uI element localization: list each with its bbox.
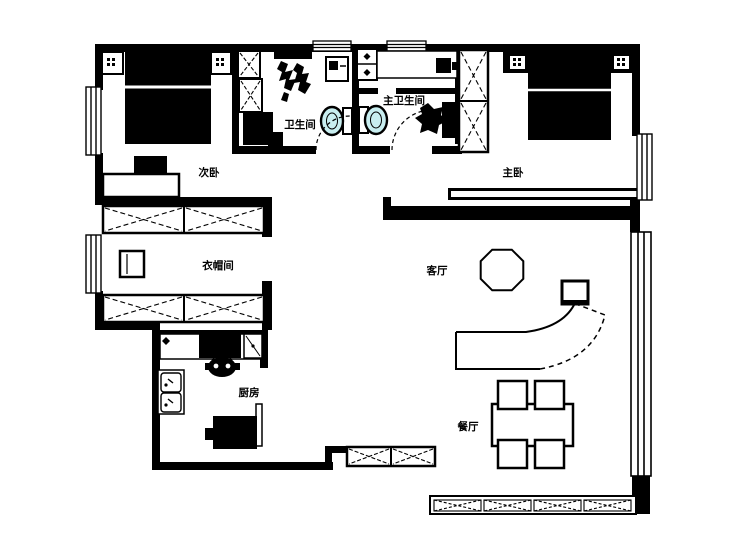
toilet-icon	[321, 107, 352, 135]
chair-icon	[498, 440, 527, 468]
nightstand-icon	[101, 52, 123, 74]
room-label-master-bathroom: 主卫生间	[383, 94, 425, 107]
bath-counter-icon	[377, 51, 458, 78]
vanity-cabinet-icon	[357, 49, 377, 80]
washing-machine-icon	[243, 112, 273, 145]
kitchen-sink-icon	[158, 370, 184, 414]
hand-sink-icon	[326, 57, 348, 81]
wardrobe-icon	[103, 295, 264, 322]
bed-icon	[125, 52, 211, 144]
vent-window-bath2	[387, 41, 426, 51]
floor-plan-canvas: 次卧 主卧 卫生间 主卫生间 衣帽间 客厅 厨房 餐厅	[0, 0, 740, 550]
room-label-secondary-bedroom: 次卧	[199, 166, 220, 179]
dining-set-icon	[492, 381, 573, 468]
room-label-kitchen: 厨房	[239, 386, 260, 399]
wardrobe-icon	[103, 206, 264, 233]
tv-icon	[562, 281, 588, 305]
round-table-icon	[481, 250, 524, 291]
room-label-master-bedroom: 主卧	[503, 166, 524, 179]
vanity-plants-icon	[274, 51, 312, 102]
shaft-icon	[238, 51, 262, 112]
shoe-cabinet-icon	[347, 447, 435, 466]
toilet-icon	[359, 106, 387, 134]
stool-icon	[120, 251, 144, 277]
room-label-cloakroom: 衣帽间	[202, 259, 234, 272]
window-bedroom-left	[86, 87, 101, 155]
room-label-bathroom: 卫生间	[284, 118, 316, 131]
nightstand-icon	[211, 52, 231, 74]
curved-sofa-counter-icon	[456, 304, 605, 369]
window-cloakroom-left	[86, 235, 101, 293]
chair-icon	[535, 440, 564, 468]
wardrobe-icon	[459, 50, 488, 152]
shower-icon	[415, 102, 456, 138]
chair-icon	[498, 381, 527, 409]
window-living-right	[631, 232, 651, 476]
kitchen-counter-icon	[160, 334, 262, 359]
fridge-icon	[205, 416, 257, 449]
floor-plan-page: 次卧 主卧 卫生间 主卫生间 衣帽间 客厅 厨房 餐厅	[0, 0, 740, 550]
bed-icon	[503, 52, 637, 140]
vent-window-bath1	[313, 41, 351, 51]
room-label-dining-room: 餐厅	[457, 420, 479, 433]
tv-cabinet-icon	[103, 156, 179, 197]
window-master-right	[637, 134, 652, 200]
chair-icon	[535, 381, 564, 409]
window-band-bottom	[430, 496, 636, 514]
room-label-living-room: 客厅	[426, 264, 448, 277]
